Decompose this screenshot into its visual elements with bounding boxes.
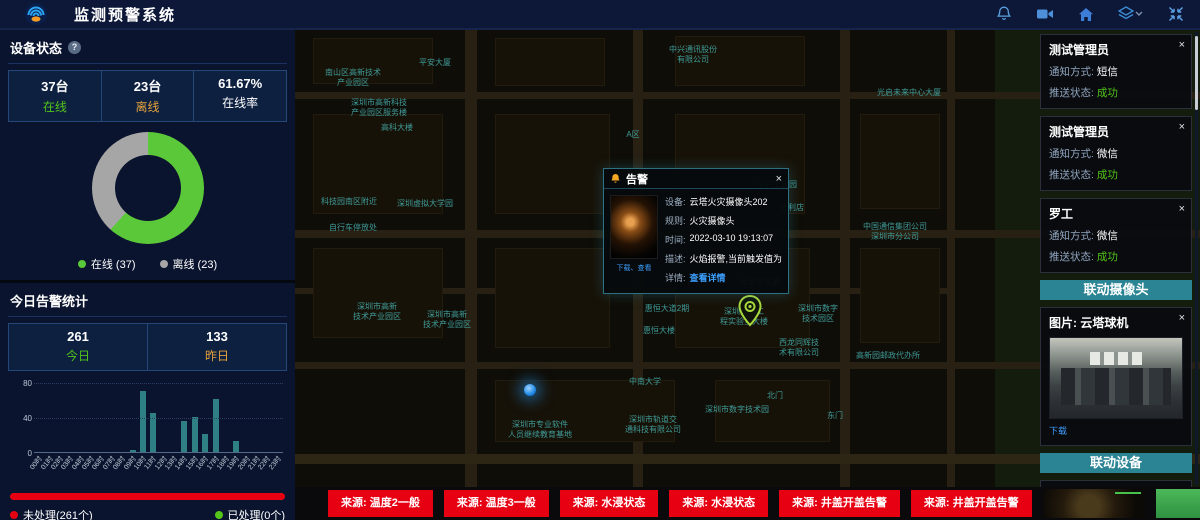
notification-title: 测试管理员 <box>1049 123 1183 140</box>
stat-value: 23台 <box>102 76 194 95</box>
map-label: 自行车停放处 <box>329 223 377 233</box>
today-xlabels: 00时01时02时03时04时05时06时07时08时09时10时11时12时1… <box>34 455 283 483</box>
map-label: 中南大学 <box>629 377 661 387</box>
popup-field: 时间:2022-03-10 19:13:07 <box>665 233 782 246</box>
help-icon[interactable]: ? <box>68 41 81 54</box>
row-value: 成功 <box>1097 87 1118 99</box>
x-axis-label: 23时 <box>273 455 283 483</box>
bar <box>130 450 136 452</box>
map-building <box>495 38 605 86</box>
camera-card: 图片: 云塔球机 × 下载 <box>1040 307 1192 446</box>
map-label: 深圳市高新科技 产业园区服务楼 <box>351 98 407 118</box>
stat-label: 在线率 <box>194 94 286 111</box>
map-building <box>495 248 610 348</box>
stat-label: 离线 <box>102 98 194 115</box>
row-value: 成功 <box>1097 169 1118 181</box>
row-label: 推送状态: <box>1049 87 1097 99</box>
today-alerts-panel: 今日告警统计 261 今日 133 昨日 00时01时02时03时04时05时0… <box>0 283 295 520</box>
alert-snapshot-image[interactable] <box>610 195 658 259</box>
field-label: 时间: <box>665 233 686 246</box>
popup-field: 规则:火灾摄像头 <box>665 214 782 227</box>
map-label: 南山区高新技术 产业园区 <box>325 68 381 88</box>
legend-dot-icon <box>78 260 86 268</box>
handled-label: 已处理(0个) <box>228 507 285 520</box>
monitoring-dashboard: 监测预警系统 <box>0 0 1200 520</box>
device-status-panel: 设备状态 ? 37台 在线 23台 离线 61.67% 在线率 <box>0 30 295 283</box>
close-icon[interactable]: × <box>1179 121 1185 133</box>
card-row: 通知方式: 微信 <box>1049 146 1183 161</box>
alert-chip[interactable]: 来源: 水浸状态 <box>560 490 659 517</box>
close-icon[interactable]: × <box>1179 39 1185 51</box>
video-camera-icon[interactable] <box>1036 7 1054 21</box>
red-dot-icon <box>10 511 18 519</box>
map-label: 深圳虚拟大学园 <box>397 199 453 209</box>
card-row: 通知方式: 微信 <box>1049 228 1183 243</box>
notification-card: 测试管理员×通知方式: 微信推送状态: 成功 <box>1040 116 1192 191</box>
panel-title-text: 今日告警统计 <box>10 291 88 310</box>
stat-today: 261 今日 <box>9 324 147 370</box>
alert-chip[interactable]: 来源: 水浸状态 <box>669 490 768 517</box>
alert-chip[interactable]: 来源: 井盖开盖告警 <box>779 490 900 517</box>
stat-online: 37台 在线 <box>9 71 101 121</box>
field-label: 规则: <box>665 214 686 227</box>
row-label: 通知方式: <box>1049 66 1097 78</box>
map-label: 中国通信集团公司 深圳市分公司 <box>863 222 927 242</box>
stat-label: 在线 <box>9 98 101 115</box>
scrollbar-thumb[interactable] <box>1195 36 1198 110</box>
field-value: 火灾摄像头 <box>690 214 735 227</box>
row-value: 微信 <box>1097 230 1118 242</box>
map-building <box>860 114 940 209</box>
notification-title: 测试管理员 <box>1049 41 1183 58</box>
legend-label: 离线 (23) <box>173 256 218 272</box>
map-label: 北门 <box>767 391 783 401</box>
row-label: 通知方式: <box>1049 148 1097 160</box>
device-online-donut <box>92 132 204 244</box>
bar-slot <box>138 391 148 452</box>
panel-title-text: 设备状态 <box>10 38 62 57</box>
unhandled-label: 未处理(261个) <box>23 507 93 520</box>
device-status-stats: 37台 在线 23台 离线 61.67% 在线率 <box>8 70 287 122</box>
notification-card: 测试管理员×通知方式: 短信推送状态: 成功 <box>1040 34 1192 109</box>
alarm-bell-icon <box>610 173 621 185</box>
popup-header: 告警 × <box>604 169 788 189</box>
popup-field: 设备:云塔火灾摄像头202 <box>665 195 782 208</box>
stat-label: 昨日 <box>148 347 286 364</box>
bar <box>181 421 187 452</box>
alert-chip[interactable]: 来源: 井盖开盖告警 <box>911 490 1032 517</box>
y-axis-tick: 80 <box>16 379 32 388</box>
notification-list: 测试管理员×通知方式: 短信推送状态: 成功测试管理员×通知方式: 微信推送状态… <box>1040 34 1192 273</box>
today-alerts-title: 今日告警统计 <box>8 289 287 317</box>
notification-title: 罗工 <box>1049 205 1183 222</box>
map-label: 高科大楼 <box>381 123 413 133</box>
popup-body: 下载、查看 设备:云塔火灾摄像头202规则:火灾摄像头时间:2022-03-10… <box>604 189 788 294</box>
map-label: 科技园南区附近 <box>321 197 377 207</box>
bar-slot <box>200 434 210 452</box>
field-value: 云塔火灾摄像头202 <box>690 195 768 208</box>
row-value: 微信 <box>1097 148 1118 160</box>
stat-value: 37台 <box>9 76 101 95</box>
field-label: 设备: <box>665 195 686 208</box>
stat-offline: 23台 离线 <box>101 71 194 121</box>
field-label: 描述: <box>665 252 686 265</box>
legend-item: 离线 (23) <box>160 256 218 272</box>
page-title: 监测预警系统 <box>74 4 176 25</box>
fullscreen-icon[interactable] <box>1168 6 1184 22</box>
progress-legend: 未处理(261个) 已处理(0个) <box>8 507 287 520</box>
stat-yesterday: 133 昨日 <box>147 324 286 370</box>
close-icon[interactable]: × <box>776 173 782 185</box>
map-label: 深圳市高新 技术产业园区 <box>423 310 471 330</box>
camera-linkage-header[interactable]: 联动摄像头 <box>1040 280 1192 300</box>
bottom-alert-ticker: 来源: 温度2一般来源: 温度3一般来源: 水浸状态来源: 水浸状态来源: 井盖… <box>295 487 1200 520</box>
today-alerts-stats: 261 今日 133 昨日 <box>8 323 287 371</box>
download-link[interactable]: 下载 <box>1049 424 1183 437</box>
map-label: A区 <box>626 130 639 140</box>
legend-item: 在线 (37) <box>78 256 136 272</box>
map-label: 光启未来中心大厦 <box>877 88 941 98</box>
green-dot-icon <box>215 511 223 519</box>
popup-image-col: 下载、查看 <box>610 195 658 290</box>
app-logo-icon <box>24 2 48 26</box>
bar <box>140 391 146 452</box>
sidebar-scrollbar[interactable] <box>1195 32 1198 485</box>
bell-icon[interactable] <box>996 6 1012 22</box>
stat-label: 今日 <box>9 347 147 364</box>
bar-slot <box>210 399 220 452</box>
camera-snapshot-image[interactable] <box>1049 337 1183 419</box>
y-axis-tick: 40 <box>16 414 32 423</box>
snapshot-links[interactable]: 下载、查看 <box>610 263 658 273</box>
location-pin-icon[interactable] <box>737 295 763 332</box>
card-row: 推送状态: 成功 <box>1049 85 1183 100</box>
notification-card: 罗工×通知方式: 微信推送状态: 成功 <box>1040 198 1192 273</box>
map-label: 高新园邮政代办所 <box>856 351 920 361</box>
map-label: 中兴通讯股份 有限公司 <box>669 45 717 65</box>
device-status-title: 设备状态 ? <box>8 36 287 64</box>
alert-chip[interactable]: 来源: 温度3一般 <box>444 490 549 517</box>
map-label: 西龙同辉技 术有限公司 <box>779 338 819 358</box>
device-linkage-header[interactable]: 联动设备 <box>1040 453 1192 473</box>
device-marker-blue[interactable] <box>524 384 536 396</box>
popup-field-detail: 详情:查看详情 <box>665 271 782 284</box>
row-label: 通知方式: <box>1049 230 1097 242</box>
row-value: 成功 <box>1097 251 1118 263</box>
map-building <box>495 114 610 214</box>
legend-dot-icon <box>160 260 168 268</box>
stat-value: 133 <box>148 329 286 344</box>
bar-slot <box>127 450 137 452</box>
right-sidebar: 测试管理员×通知方式: 短信推送状态: 成功测试管理员×通知方式: 微信推送状态… <box>1040 30 1198 487</box>
unhandled-legend: 未处理(261个) <box>10 507 93 520</box>
bar <box>233 441 239 452</box>
handled-legend: 已处理(0个) <box>215 507 285 520</box>
map-label: 平安大厦 <box>419 58 451 68</box>
unhandled-progress-bar <box>10 493 285 500</box>
donut-legend: 在线 (37)离线 (23) <box>8 256 287 272</box>
stat-value: 61.67% <box>194 76 286 91</box>
row-label: 推送状态: <box>1049 251 1097 263</box>
field-value: 2022-03-10 19:13:07 <box>690 233 774 246</box>
bar <box>202 434 208 452</box>
bar-slot <box>190 417 200 452</box>
map-label: 惠恒大道2期 <box>645 304 689 314</box>
gridline <box>34 383 283 384</box>
card-row: 推送状态: 成功 <box>1049 167 1183 182</box>
row-value: 短信 <box>1097 66 1118 78</box>
close-icon[interactable]: × <box>1179 312 1185 324</box>
legend-label: 在线 (37) <box>91 256 136 272</box>
map-label: 东门 <box>827 411 843 421</box>
home-icon[interactable] <box>1078 7 1094 22</box>
bar-slot <box>179 421 189 452</box>
gridline <box>34 418 283 419</box>
field-value: 火焰报警,当前触发值为... <box>690 252 782 265</box>
today-chart: 00时01时02时03时04时05时06时07时08时09时10时11时12时1… <box>8 379 287 485</box>
popup-title: 告警 <box>626 171 648 187</box>
alert-popup: 告警 × 下载、查看 设备:云塔火灾摄像头202规则:火灾摄像头时间:2022-… <box>603 168 789 294</box>
popup-rows: 设备:云塔火灾摄像头202规则:火灾摄像头时间:2022-03-10 19:13… <box>658 195 782 290</box>
bottom-alert-track: 来源: 温度2一般来源: 温度3一般来源: 水浸状态来源: 水浸状态来源: 井盖… <box>328 490 1032 517</box>
view-details-link[interactable]: 查看详情 <box>690 271 726 284</box>
popup-field: 描述:火焰报警,当前触发值为... <box>665 252 782 265</box>
chevron-down-icon <box>1136 12 1142 15</box>
bar <box>213 399 219 452</box>
camera-card-title: 图片: 云塔球机 <box>1049 314 1183 331</box>
map-label: 深圳市高新 技术产业园区 <box>353 302 401 322</box>
y-axis-tick: 0 <box>16 449 32 458</box>
card-row: 通知方式: 短信 <box>1049 64 1183 79</box>
bar <box>192 417 198 452</box>
alert-thumbnail-green[interactable] <box>1156 489 1200 518</box>
map-label: 深圳市数字技术园 <box>705 405 769 415</box>
bar-slot <box>231 441 241 452</box>
stat-value: 261 <box>9 329 147 344</box>
map-label: 惠恒大楼 <box>643 326 675 336</box>
card-row: 推送状态: 成功 <box>1049 249 1183 264</box>
map-building <box>860 248 940 343</box>
map-label: 深圳市数字 技术园区 <box>798 304 838 324</box>
alert-thumbnail-image[interactable] <box>1043 489 1145 518</box>
left-sidebar: 设备状态 ? 37台 在线 23台 离线 61.67% 在线率 <box>0 30 295 520</box>
layers-icon[interactable] <box>1118 6 1144 22</box>
alert-chip[interactable]: 来源: 温度2一般 <box>328 490 433 517</box>
donut-chart-wrap <box>8 132 287 244</box>
row-label: 推送状态: <box>1049 169 1097 181</box>
top-bar: 监测预警系统 <box>0 0 1200 30</box>
close-icon[interactable]: × <box>1179 203 1185 215</box>
top-icon-group <box>996 6 1184 22</box>
map-label: 深圳市轨道交 通科技有限公司 <box>625 415 681 435</box>
map-label: 深圳市专业软件 人员继续教育基地 <box>508 420 572 440</box>
field-label: 详情: <box>665 271 686 284</box>
stat-online-rate: 61.67% 在线率 <box>193 71 286 121</box>
